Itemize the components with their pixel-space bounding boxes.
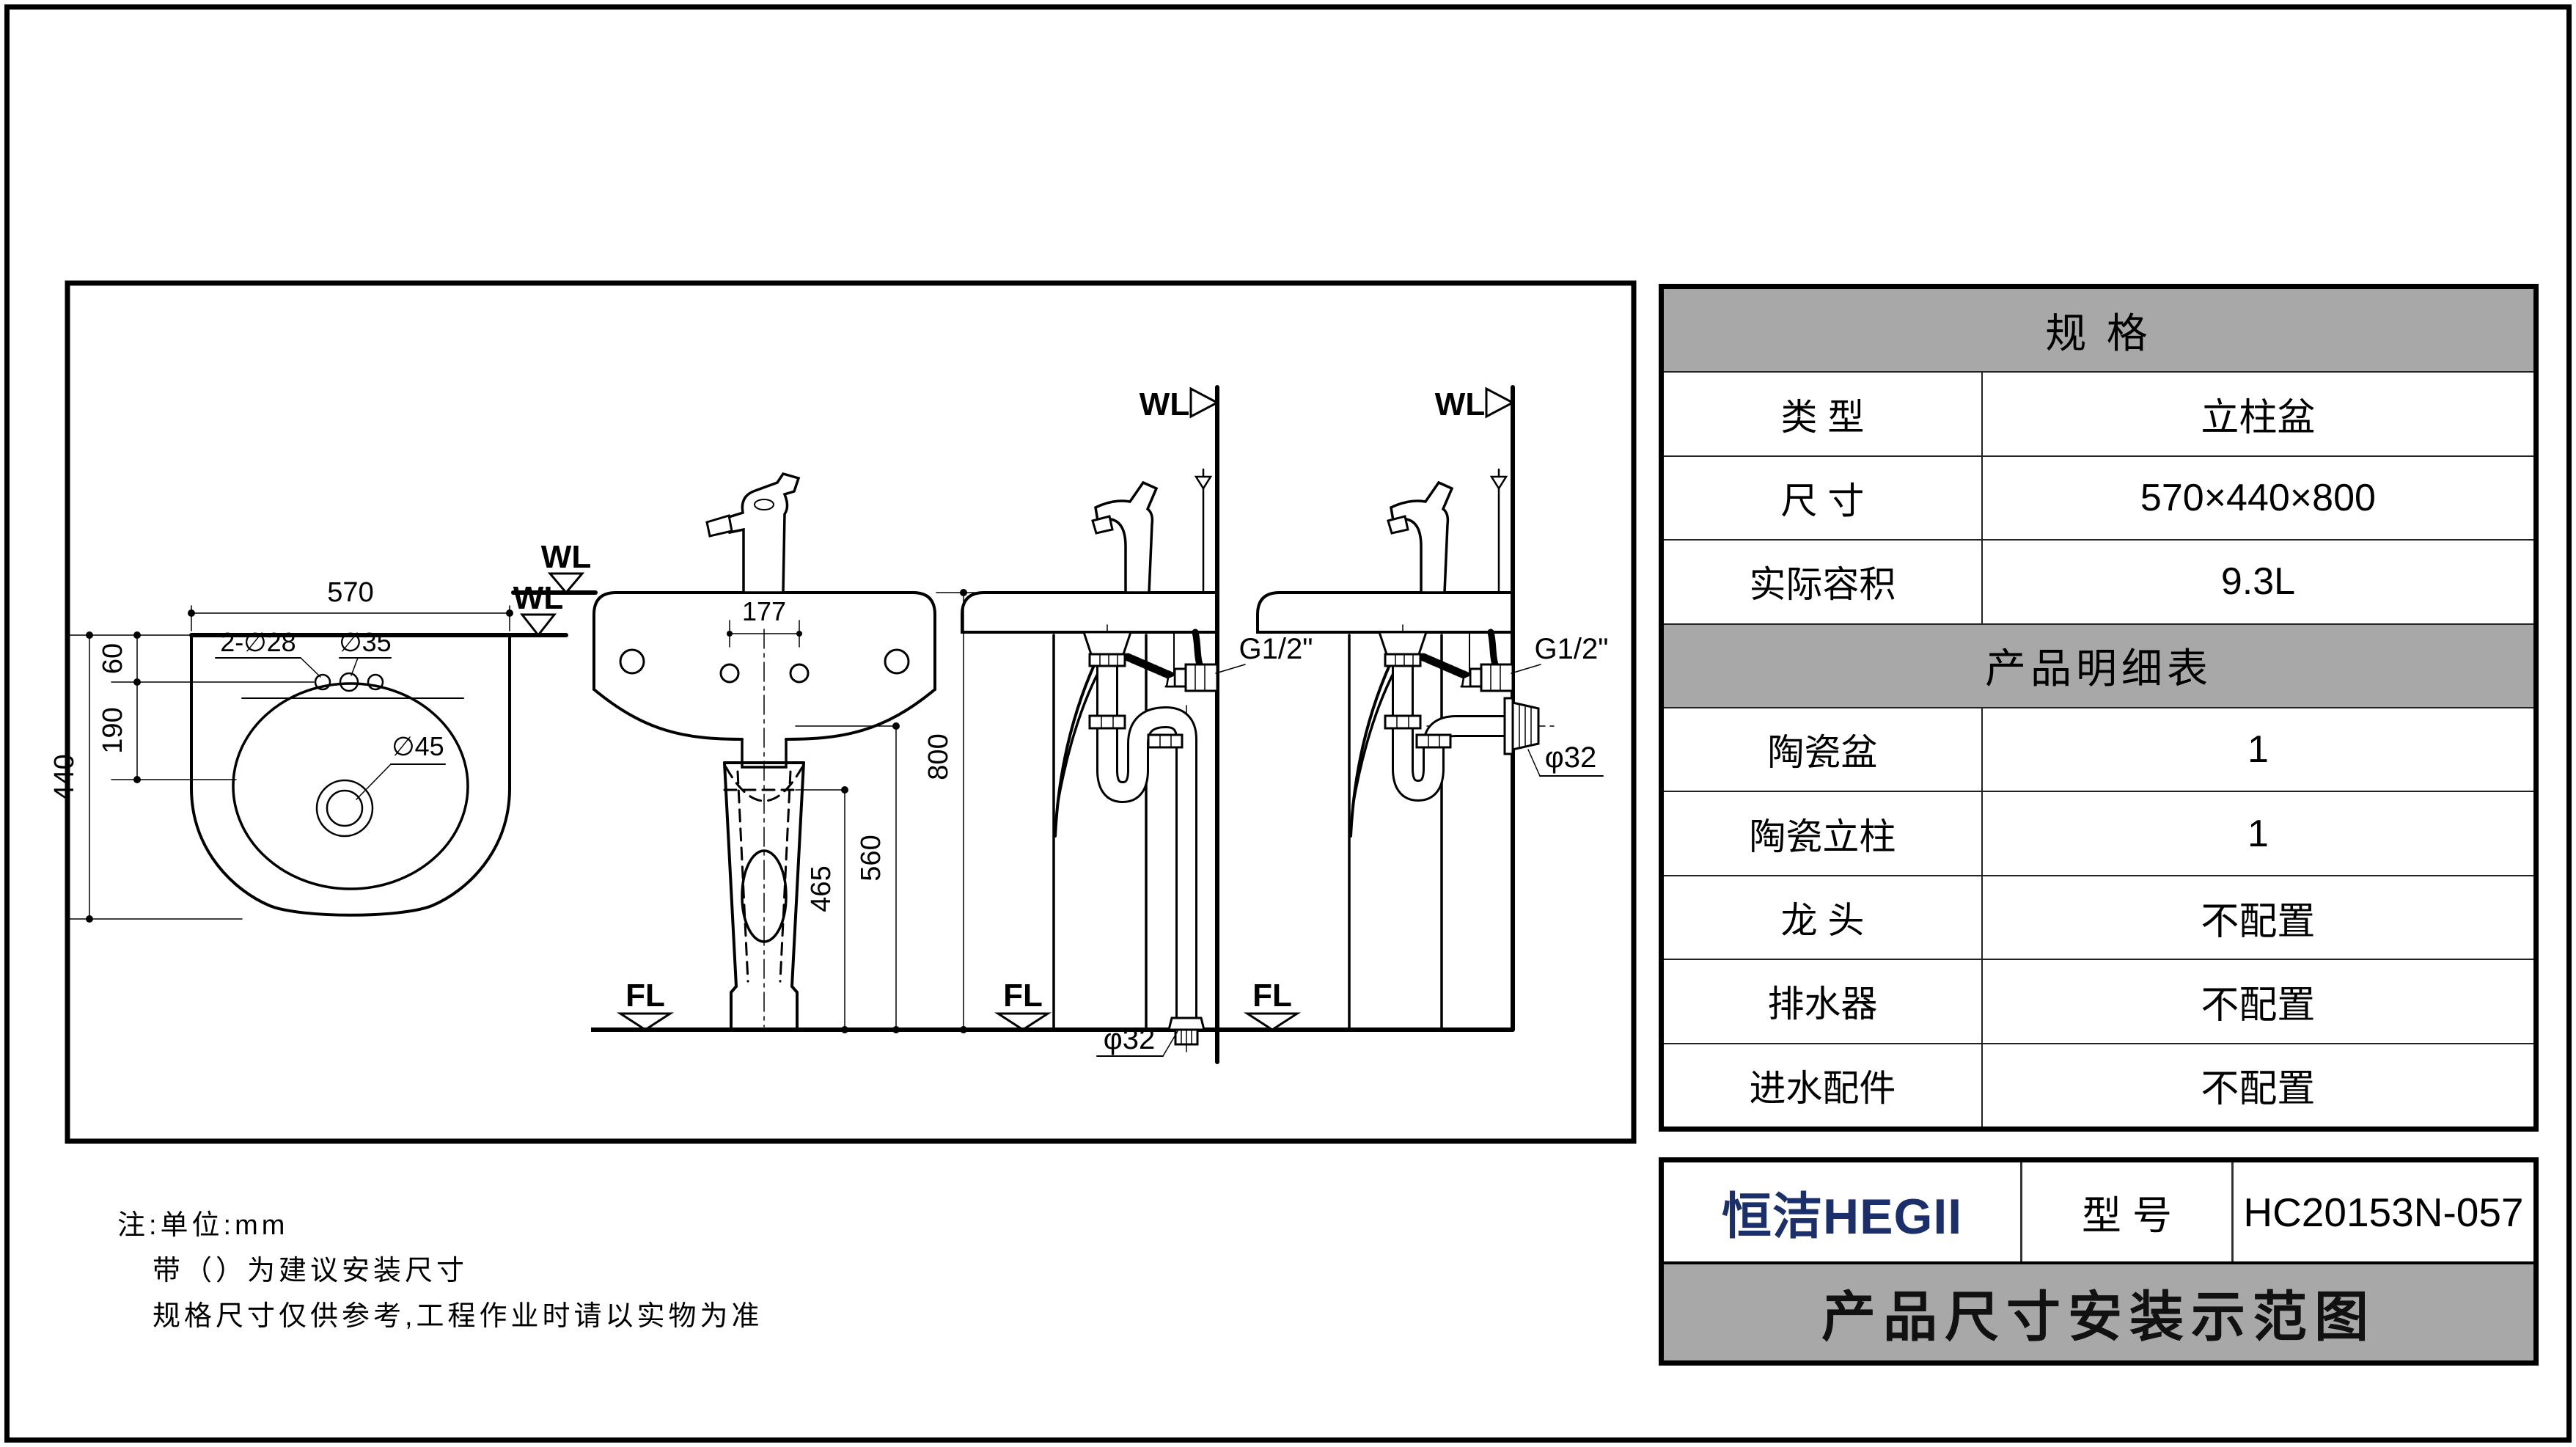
spec-header-1: 规 格	[1664, 289, 2533, 373]
side2-drain-label: φ32	[1545, 741, 1596, 774]
model-value: HC20153N-057	[2234, 1162, 2533, 1261]
sheet-title-banner: 产品尺寸安装示范图	[1664, 1264, 2533, 1360]
table-row: 实际容积 9.3L	[1664, 541, 2533, 624]
row-label: 龙 头	[1664, 876, 1983, 959]
top-label-holes: 2-∅28	[220, 627, 296, 657]
front-dim-465: 465	[806, 865, 837, 912]
side1-wl-label: WL	[1140, 387, 1189, 422]
note-line-2: 带（）为建议安装尺寸	[153, 1248, 763, 1294]
row-value: 不配置	[1983, 876, 2533, 959]
table-row: 陶瓷盆 1	[1664, 708, 2533, 792]
side2-wl-label: WL	[1435, 387, 1485, 422]
row-value: 不配置	[1983, 960, 2533, 1042]
table-row: 类 型 立柱盆	[1664, 373, 2533, 456]
top-dim-570: 570	[327, 577, 373, 608]
row-label: 陶瓷立柱	[1664, 792, 1983, 874]
row-value: 立柱盆	[1983, 373, 2533, 455]
top-dim-60: 60	[98, 643, 128, 674]
front-fl-left-label: FL	[625, 978, 665, 1014]
front-dim-177: 177	[742, 596, 786, 626]
top-dim-190: 190	[98, 707, 128, 753]
side2-valve-label: G1/2"	[1535, 633, 1609, 665]
table-row: 陶瓷立柱 1	[1664, 792, 2533, 876]
table-row: 龙 头 不配置	[1664, 876, 2533, 960]
front-fl-right-label: FL	[1003, 978, 1043, 1014]
notes: 注:单位:mm 带（）为建议安装尺寸 规格尺寸仅供参考,工程作业时请以实物为准	[117, 1203, 763, 1339]
row-value: 9.3L	[1983, 541, 2533, 623]
spec-table: 规 格 类 型 立柱盆 尺 寸 570×440×800 实际容积 9.3L 产品…	[1659, 284, 2539, 1132]
row-label: 实际容积	[1664, 541, 1983, 623]
note-line-3: 规格尺寸仅供参考,工程作业时请以实物为准	[153, 1294, 763, 1339]
top-wl-marker-label: WL	[513, 580, 563, 616]
front-dim-800: 800	[923, 733, 954, 780]
model-label: 型 号	[2022, 1162, 2234, 1261]
side1-drain-label: φ32	[1104, 1023, 1155, 1055]
front-dim-560: 560	[856, 835, 887, 881]
angle-valve-side1	[1167, 664, 1217, 691]
row-value: 1	[1983, 792, 2533, 874]
note-line-1: 注:单位:mm	[117, 1203, 763, 1248]
table-row: 尺 寸 570×440×800	[1664, 457, 2533, 541]
row-value: 1	[1983, 708, 2533, 791]
top-label-mid-hole: ∅35	[339, 627, 391, 657]
spec-header-1-label: 规 格	[2045, 301, 2152, 360]
drawing-sheet: 570 60 190 440 2-∅28 ∅35 ∅45 WL WL	[0, 0, 2576, 1447]
row-value: 不配置	[1983, 1044, 2533, 1127]
row-label: 排水器	[1664, 960, 1983, 1042]
row-label: 类 型	[1664, 373, 1983, 455]
table-row: 排水器 不配置	[1664, 960, 2533, 1044]
row-value: 570×440×800	[1983, 457, 2533, 539]
row-label: 进水配件	[1664, 1044, 1983, 1127]
table-row: 进水配件 不配置	[1664, 1044, 2533, 1127]
side1-fl-label: FL	[1252, 978, 1292, 1014]
top-label-drain: ∅45	[392, 731, 444, 761]
side1-valve-label: G1/2"	[1239, 633, 1313, 665]
row-label: 尺 寸	[1664, 457, 1983, 539]
row-label: 陶瓷盆	[1664, 708, 1983, 791]
brand-logo: 恒洁HEGII	[1664, 1162, 2022, 1261]
top-dim-440: 440	[49, 754, 80, 800]
spec-header-2-label: 产品明细表	[1985, 636, 2212, 695]
spec-header-2: 产品明细表	[1664, 625, 2533, 708]
angle-valve-side2	[1462, 664, 1513, 691]
title-block: 恒洁HEGII 型 号 HC20153N-057 产品尺寸安装示范图	[1659, 1157, 2539, 1366]
front-wl-marker-label: WL	[541, 539, 591, 575]
